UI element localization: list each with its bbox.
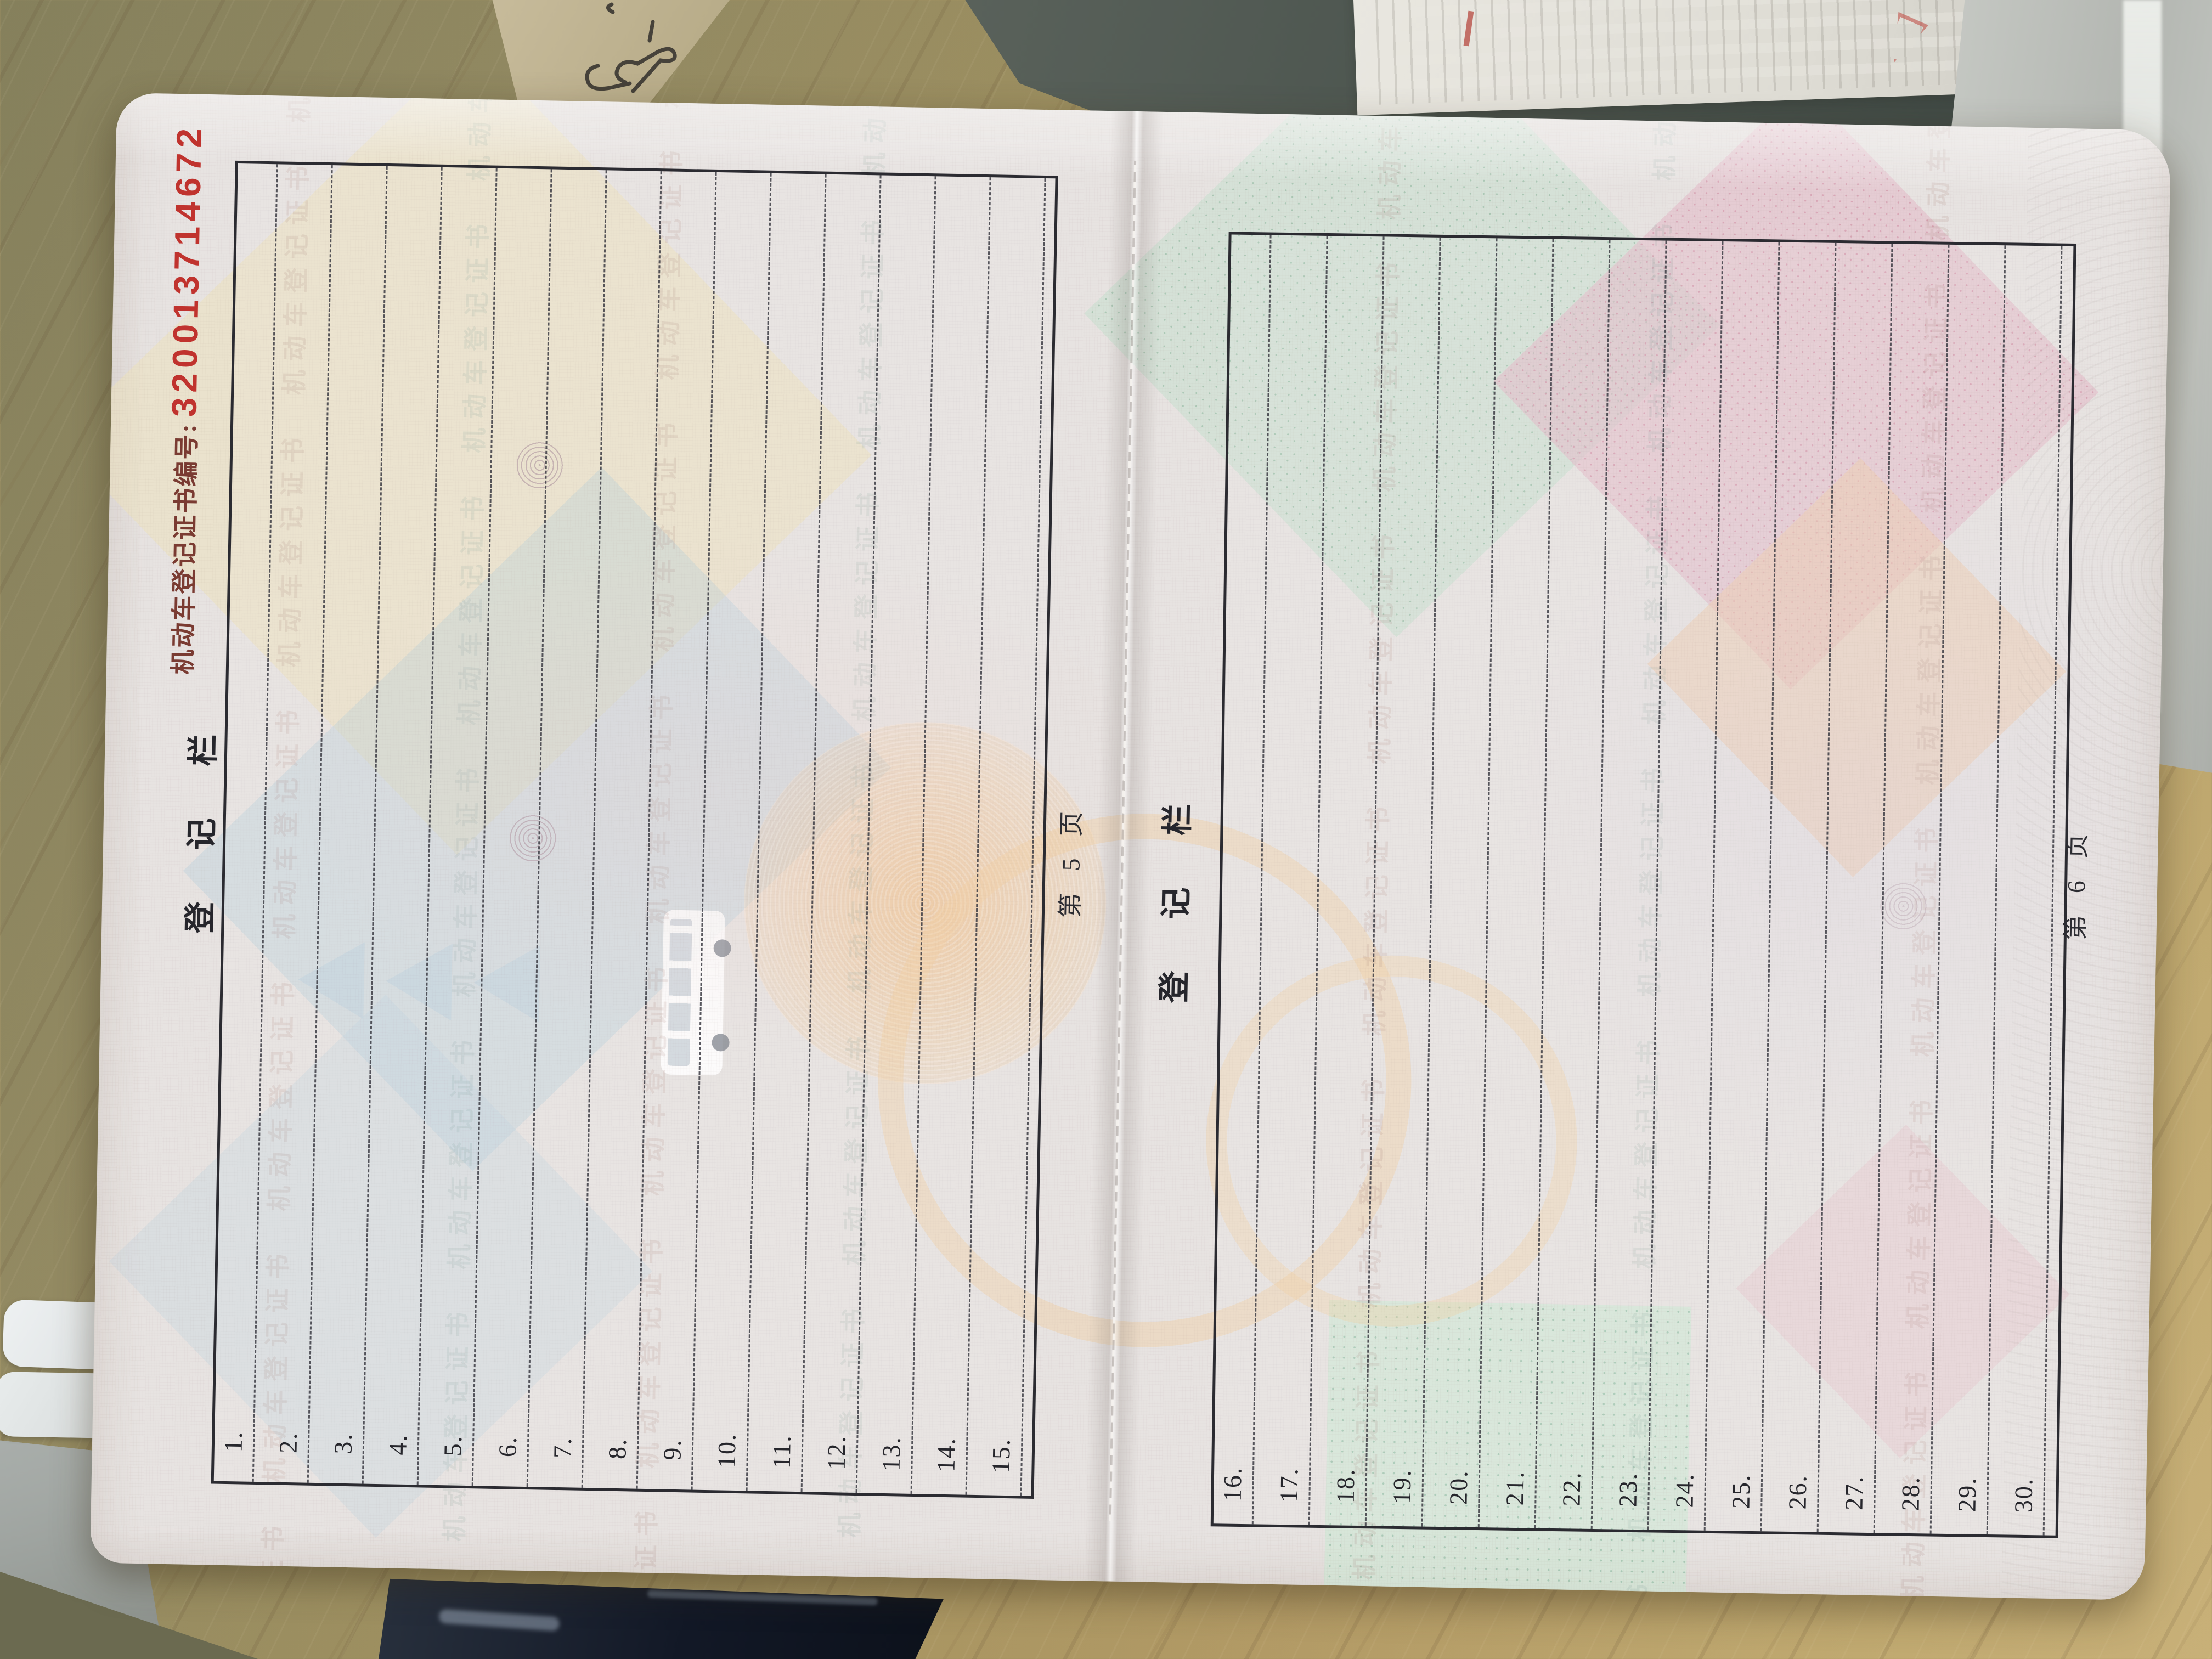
line-number-holder: 6. (492, 1410, 523, 1482)
ruled-dashed-line (1534, 239, 1554, 1528)
line-number-holder: 24. (1669, 1454, 1701, 1526)
registration-booklet-spread: 机动车登记证书 机动车登记证书 机动车登记证书 机动车登记证书 机动车登记证书 … (90, 93, 2171, 1600)
line-number-holder: 17. (1273, 1449, 1305, 1521)
line-number-holder: 27. (1838, 1457, 1870, 1528)
ruled-dashed-line (1591, 240, 1611, 1529)
registration-table-page6: 16. 17. 18. 19. 20. (1211, 232, 2076, 1538)
left-page-title: 登 记 栏 (174, 712, 224, 934)
ruled-dashed-line (1478, 238, 1498, 1527)
certificate-number-value: 320013714672 (164, 123, 209, 417)
line-number-holder: 10. (711, 1414, 743, 1486)
line-number: 6. (493, 1436, 522, 1457)
line-number-holder: 21. (1499, 1452, 1531, 1524)
line-number: 12. (822, 1435, 851, 1470)
line-number: 22. (1557, 1471, 1587, 1506)
line-number-holder: 8. (601, 1413, 633, 1485)
line-number: 13. (877, 1436, 906, 1471)
registration-table-page5: 1. 2. 3. 4. 5. (211, 161, 1058, 1499)
ruled-dashed-line (1704, 241, 1724, 1531)
right-page-title: 登 记 栏 (1148, 781, 1198, 1003)
ruled-dashed-line (1760, 242, 1780, 1531)
page6-label: 第 6 页 (2055, 826, 2093, 940)
line-number-holder: 19. (1386, 1451, 1418, 1522)
line-number: 25. (1726, 1474, 1756, 1509)
ruled-dashed-line (1365, 236, 1385, 1526)
line-number: 17. (1274, 1467, 1304, 1502)
line-number-holder: 1. (217, 1406, 249, 1477)
line-number: 2. (273, 1431, 303, 1453)
line-number: 29. (1953, 1476, 1982, 1511)
handwriting-scribble (560, 0, 757, 110)
line-number: 3. (328, 1432, 358, 1454)
line-number: 20. (1444, 1469, 1474, 1504)
line-number: 7. (548, 1436, 577, 1458)
line-number: 30. (2009, 1477, 2039, 1513)
certificate-number-line: 机动车登记证书编号:320013714672 (159, 123, 210, 675)
line-number-holder: 2. (272, 1407, 304, 1479)
line-number-holder: 15. (985, 1419, 1017, 1491)
line-number-holder: 13. (876, 1418, 907, 1489)
line-number: 21. (1500, 1470, 1530, 1505)
line-number: 8. (602, 1437, 632, 1459)
line-number-holder: 11. (766, 1415, 798, 1487)
line-number: 5. (438, 1435, 467, 1456)
line-number: 27. (1839, 1475, 1869, 1510)
ruled-dashed-line (1930, 245, 1950, 1534)
line-number-holder: 28. (1895, 1458, 1927, 1530)
line-number: 24. (1670, 1472, 1700, 1508)
line-number-holder: 7. (546, 1412, 578, 1483)
line-number: 28. (1896, 1476, 1926, 1511)
line-number-holder: 4. (382, 1408, 414, 1480)
line-number: 26. (1783, 1474, 1813, 1509)
ruled-dashed-line (1647, 241, 1667, 1530)
line-number: 14. (932, 1437, 961, 1472)
ruled-dashed-line (1421, 238, 1441, 1527)
ruled-dashed-line (1252, 235, 1272, 1525)
line-number-holder: 3. (327, 1407, 359, 1479)
line-number-holder: 18. (1330, 1449, 1362, 1521)
receipt-faint-text (1375, 0, 1971, 105)
line-number-holder: 16. (1217, 1448, 1249, 1520)
line-number: 9. (657, 1438, 687, 1460)
line-number-holder: 20. (1443, 1451, 1475, 1523)
line-number: 15. (986, 1438, 1016, 1473)
line-number: 19. (1387, 1469, 1417, 1504)
ruled-dashed-line (1308, 236, 1328, 1525)
line-number: 11. (767, 1434, 797, 1469)
line-number-holder: 26. (1782, 1456, 1814, 1528)
line-number-holder: 12. (821, 1417, 853, 1488)
ruled-dashed-line (1987, 245, 2006, 1534)
line-number: 23. (1613, 1472, 1643, 1507)
line-number: 1. (218, 1430, 248, 1452)
line-number: 18. (1331, 1468, 1361, 1503)
line-number-holder: 30. (2008, 1459, 2040, 1531)
ruled-dashed-line (1817, 243, 1837, 1532)
line-number: 10. (712, 1432, 742, 1468)
line-number: 4. (383, 1434, 413, 1455)
line-number: 16. (1218, 1466, 1248, 1502)
page5-label: 第 5 页 (1050, 803, 1088, 918)
ruled-dashed-line (1874, 244, 1893, 1533)
line-number-holder: 22. (1556, 1453, 1588, 1525)
line-number-holder: 9. (656, 1413, 688, 1485)
certificate-number-label: 机动车登记证书编号: (169, 422, 201, 675)
line-number-holder: 23. (1612, 1453, 1644, 1525)
line-number-holder: 5. (437, 1409, 469, 1481)
line-number-holder: 25. (1725, 1455, 1757, 1527)
line-number-holder: 29. (1951, 1458, 1983, 1530)
line-number-holder: 14. (930, 1419, 962, 1491)
